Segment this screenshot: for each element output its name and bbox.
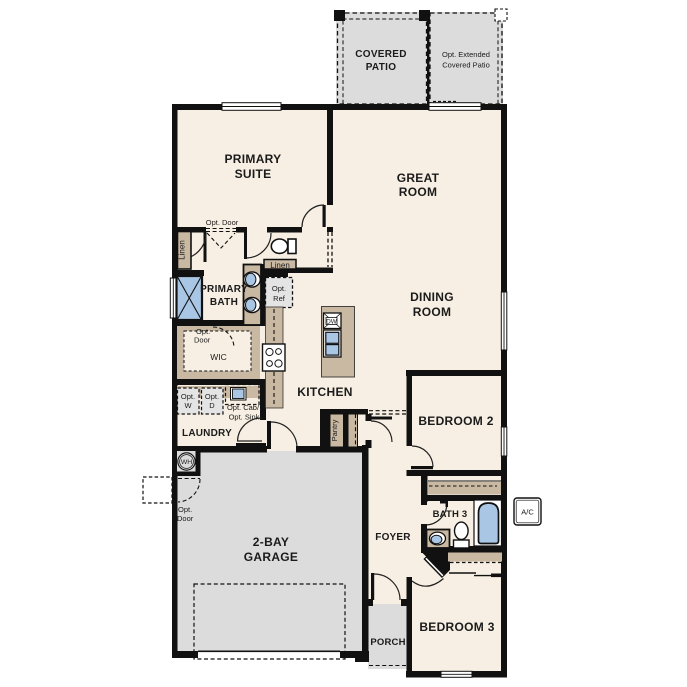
svg-text:GARAGE: GARAGE	[244, 550, 298, 564]
svg-text:Opt.: Opt.	[178, 505, 192, 514]
svg-text:Door: Door	[194, 336, 211, 345]
svg-text:DINING: DINING	[410, 290, 454, 304]
svg-text:Opt. Cab/: Opt. Cab/	[227, 403, 260, 412]
svg-text:Door: Door	[177, 514, 194, 523]
svg-text:D: D	[209, 401, 215, 410]
svg-text:FOYER: FOYER	[375, 532, 411, 543]
svg-text:Opt.: Opt.	[181, 392, 195, 401]
svg-text:GREAT: GREAT	[397, 171, 440, 185]
svg-text:Opt.: Opt.	[205, 392, 219, 401]
svg-text:Ref: Ref	[273, 294, 286, 303]
svg-text:PORCH: PORCH	[370, 637, 405, 648]
svg-text:WIC: WIC	[210, 352, 227, 362]
svg-text:Opt.: Opt.	[272, 284, 286, 293]
svg-text:2-BAY: 2-BAY	[253, 535, 289, 549]
svg-text:A/C: A/C	[521, 508, 534, 517]
svg-text:ROOM: ROOM	[413, 305, 452, 319]
svg-text:KITCHEN: KITCHEN	[297, 385, 352, 399]
svg-text:PRIMARY: PRIMARY	[225, 152, 282, 166]
svg-text:Linen: Linen	[270, 261, 290, 270]
svg-text:WH: WH	[181, 459, 192, 466]
svg-text:LAUNDRY: LAUNDRY	[182, 428, 232, 439]
svg-text:Linen: Linen	[178, 240, 187, 260]
svg-text:Opt. Sink: Opt. Sink	[229, 413, 260, 422]
svg-text:DW: DW	[326, 319, 338, 326]
svg-text:BEDROOM 3: BEDROOM 3	[419, 620, 494, 634]
svg-text:BATH 3: BATH 3	[433, 509, 468, 520]
svg-text:PATIO: PATIO	[366, 62, 397, 73]
svg-text:W: W	[184, 401, 192, 410]
svg-text:ROOM: ROOM	[399, 185, 438, 199]
svg-text:PRIMARY: PRIMARY	[200, 284, 248, 295]
svg-text:Opt. Door: Opt. Door	[206, 218, 239, 227]
svg-text:COVERED: COVERED	[355, 49, 407, 60]
svg-text:SUITE: SUITE	[235, 167, 272, 181]
svg-text:BEDROOM 2: BEDROOM 2	[418, 414, 493, 428]
svg-text:Covered Patio: Covered Patio	[442, 61, 490, 70]
svg-text:BATH: BATH	[210, 297, 238, 308]
svg-text:Pantry: Pantry	[330, 419, 339, 441]
svg-text:Opt. Extended: Opt. Extended	[442, 50, 490, 59]
